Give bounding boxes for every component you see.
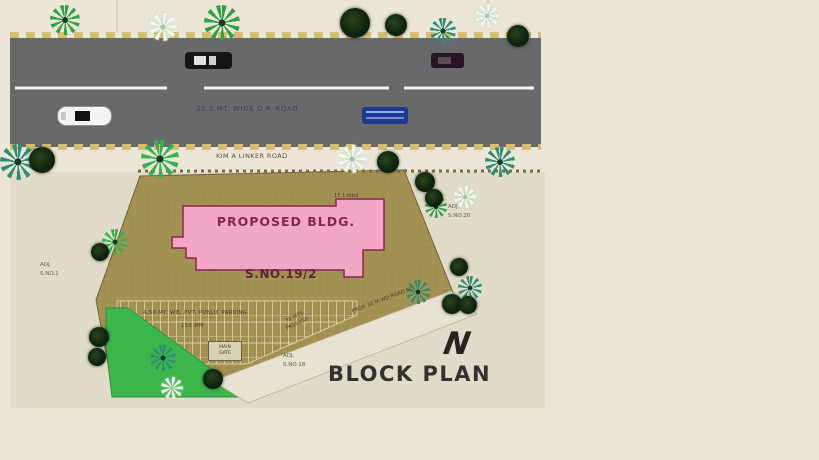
adjacent-plot-label-right: ADJ. S.NO.20: [448, 203, 470, 220]
adj-left-line2: S.NO.1: [40, 270, 59, 279]
main-gate-box: MAIN GATE: [208, 341, 242, 361]
block-plan-drawing: 30.0 MT. WIDE D.P. ROAD KIM A LINKER ROA…: [0, 0, 819, 460]
survey-number-label: S.NO.19/2: [226, 267, 336, 282]
proposed-building-footprint: [172, 199, 384, 277]
adjacent-plot-label-bottom: ADJ. S.NO.18: [283, 352, 305, 369]
parking-label: 4.50 MT. WD. PVT. PUBLIC PARKING: [143, 310, 247, 317]
gate-label-line2: GATE: [219, 351, 231, 357]
dimension-label: 17.1 mtrs: [334, 193, 358, 199]
adj-left-line1: ADJ.: [40, 261, 59, 270]
adj-bottom-line1: ADJ.: [283, 352, 305, 361]
road-name-label: 30.0 MT. WIDE D.P. ROAD: [196, 105, 352, 114]
plan-title: BLOCK PLAN: [328, 361, 491, 387]
adj-right-line2: S.NO.20: [448, 212, 470, 221]
adjacent-plot-label-left: ADJ. S.NO.1: [40, 261, 59, 278]
parking-count-label: 150 MM: [181, 323, 204, 330]
plan-shapes: [0, 0, 819, 460]
road-edge-label: KIM A LINKER ROAD: [216, 152, 288, 160]
proposed-building-label: PROPOSED BLDG.: [206, 214, 366, 230]
road-surface: [10, 38, 541, 147]
adj-bottom-line2: S.NO.18: [283, 361, 305, 370]
adj-right-line1: ADJ.: [448, 203, 470, 212]
